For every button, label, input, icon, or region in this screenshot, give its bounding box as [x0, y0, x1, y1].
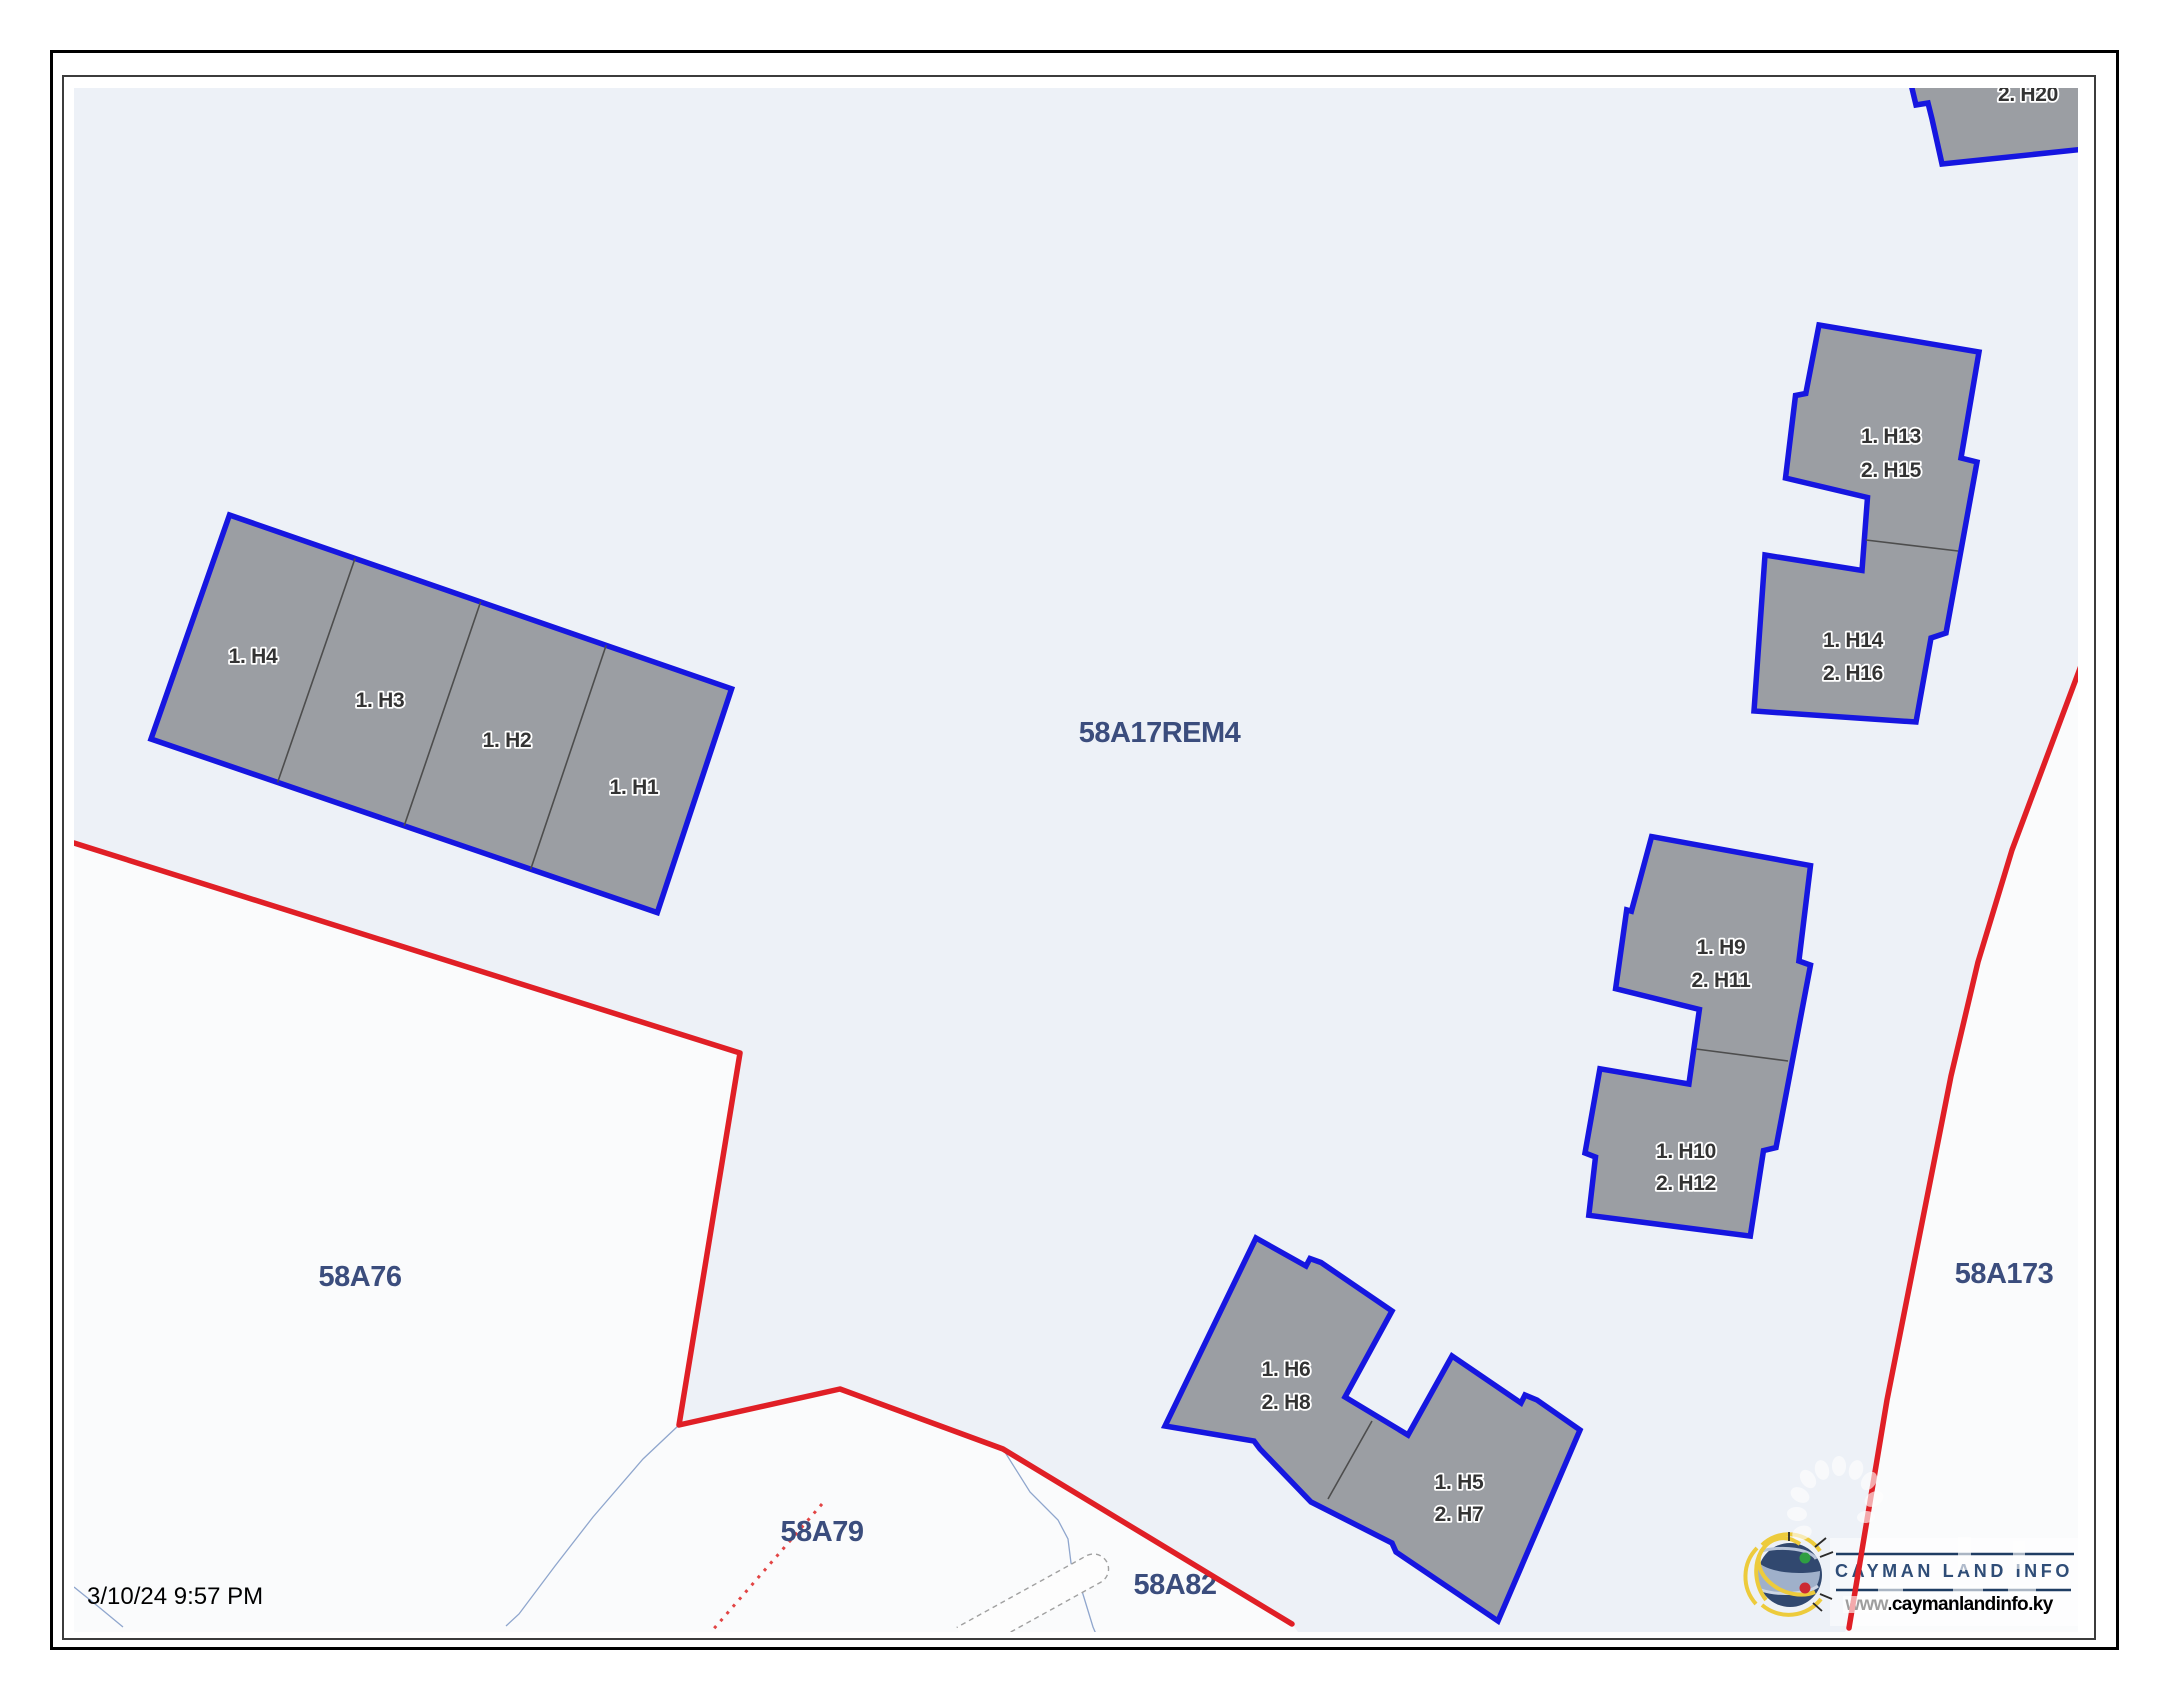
svg-text:3/10/24 9:57 PM: 3/10/24 9:57 PM [87, 1583, 263, 1610]
svg-text:58A76: 58A76 [319, 1261, 402, 1293]
svg-text:2. H8: 2. H8 [1262, 1391, 1311, 1414]
svg-text:1. H14: 1. H14 [1823, 629, 1884, 652]
svg-text:2. H20: 2. H20 [1998, 88, 2058, 106]
svg-text:2. H11: 2. H11 [1692, 969, 1752, 992]
svg-text:1. H9: 1. H9 [1697, 936, 1746, 959]
svg-text:1. H13: 1. H13 [1861, 425, 1921, 448]
svg-text:2. H16: 2. H16 [1823, 662, 1883, 685]
svg-text:2. H15: 2. H15 [1861, 459, 1922, 482]
svg-text:1. H5: 1. H5 [1435, 1471, 1484, 1494]
svg-text:58A79: 58A79 [781, 1516, 864, 1548]
svg-text:1. H1: 1. H1 [610, 776, 659, 799]
svg-text:1. H3: 1. H3 [356, 689, 405, 712]
svg-text:2. H12: 2. H12 [1656, 1172, 1716, 1195]
svg-text:58A17REM4: 58A17REM4 [1079, 717, 1241, 749]
svg-text:58A173: 58A173 [1955, 1258, 2054, 1290]
svg-text:CAYMAN LAND INFO: CAYMAN LAND INFO [1835, 1561, 2073, 1581]
svg-text:1. H2: 1. H2 [483, 729, 532, 752]
svg-text:1. H4: 1. H4 [229, 645, 278, 668]
svg-text:1. H6: 1. H6 [1262, 1358, 1311, 1381]
svg-text:1. H10: 1. H10 [1656, 1140, 1716, 1163]
svg-text:2. H7: 2. H7 [1435, 1503, 1484, 1526]
